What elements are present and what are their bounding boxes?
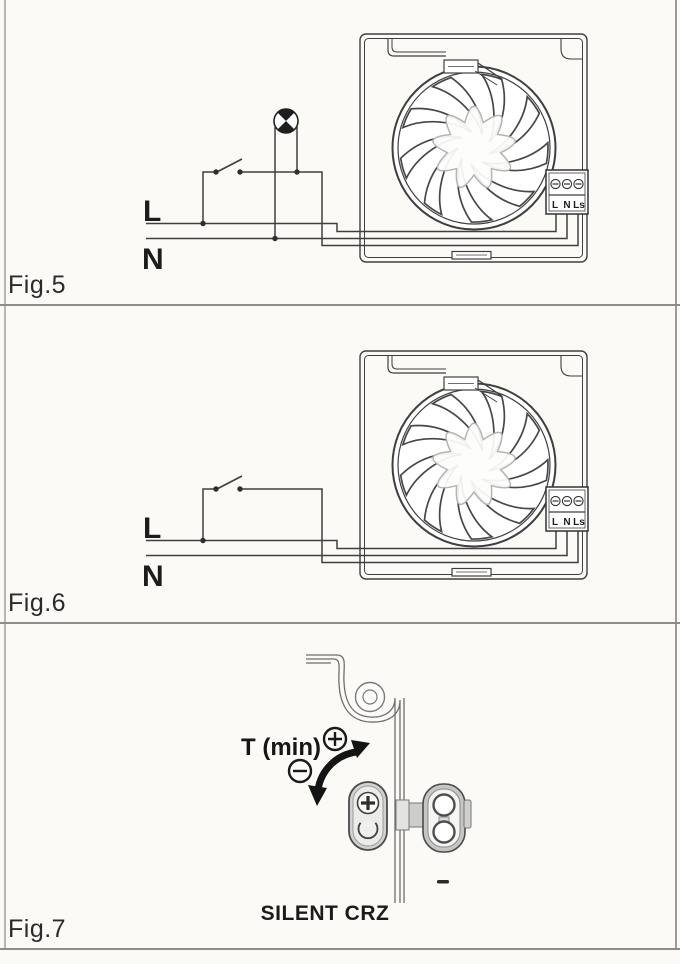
live-line-label: L [143, 512, 161, 545]
hinge-bracket [396, 800, 409, 830]
corner-notch [561, 356, 583, 376]
neutral-line-label: N [142, 560, 164, 593]
figure-5-label: Fig.5 [8, 271, 66, 300]
neutral-line-label: N [142, 243, 164, 276]
figure-6-panel: LNLsLN Fig.6 [0, 306, 680, 624]
plus-icon [324, 728, 346, 750]
wire-junction-dot [237, 486, 242, 491]
corner-notch [561, 39, 583, 59]
switch-feed-wire [203, 489, 216, 541]
terminal-label-l: L [552, 517, 558, 528]
terminal-label-l: L [552, 200, 558, 211]
live-line-label: L [143, 195, 161, 228]
switch-feed-wire [203, 172, 216, 224]
motor-mount-line [388, 355, 446, 373]
figure-5-panel: LNLsLN Fig.5 [0, 0, 680, 306]
hinge-bracket [409, 803, 424, 827]
wire-junction-dot [294, 169, 299, 174]
timer-label: T (min) [241, 734, 321, 761]
wire-junction-dot [237, 169, 242, 174]
minus-icon [289, 760, 311, 782]
product-name: SILENT CRZ [261, 902, 390, 925]
timer-potentiometer [349, 782, 387, 850]
wire-junction-dot [213, 486, 218, 491]
wire-junction-dot [200, 538, 205, 543]
motor-mount-line [388, 38, 446, 56]
figure-5-wiring-diagram: LNLsLN [0, 0, 680, 304]
wire-junction-dot [200, 221, 205, 226]
manual-page: LNLsLN Fig.5 LNLsLN Fig.6 T (min) [0, 0, 680, 964]
motor-mount-line [392, 38, 446, 52]
figure-6-label: Fig.6 [8, 589, 66, 618]
small-dash-mark [437, 880, 449, 884]
wire-junction-dot [272, 236, 277, 241]
terminal-label-ls: Ls [573, 517, 585, 528]
connector-block [423, 784, 471, 852]
figure-7-panel: T (min) [0, 624, 680, 950]
figure-7-label: Fig.7 [8, 915, 66, 944]
motor-mount-line [392, 355, 446, 369]
terminal-label-ls: Ls [573, 200, 585, 211]
figure-6-wiring-diagram: LNLsLN [0, 306, 680, 622]
terminal-label-n: N [563, 517, 570, 528]
terminal-label-n: N [563, 200, 570, 211]
figure-7-timer-adjust-diagram: T (min) [0, 624, 680, 948]
screw-boss-hole [363, 690, 377, 704]
wire-junction-dot [213, 169, 218, 174]
